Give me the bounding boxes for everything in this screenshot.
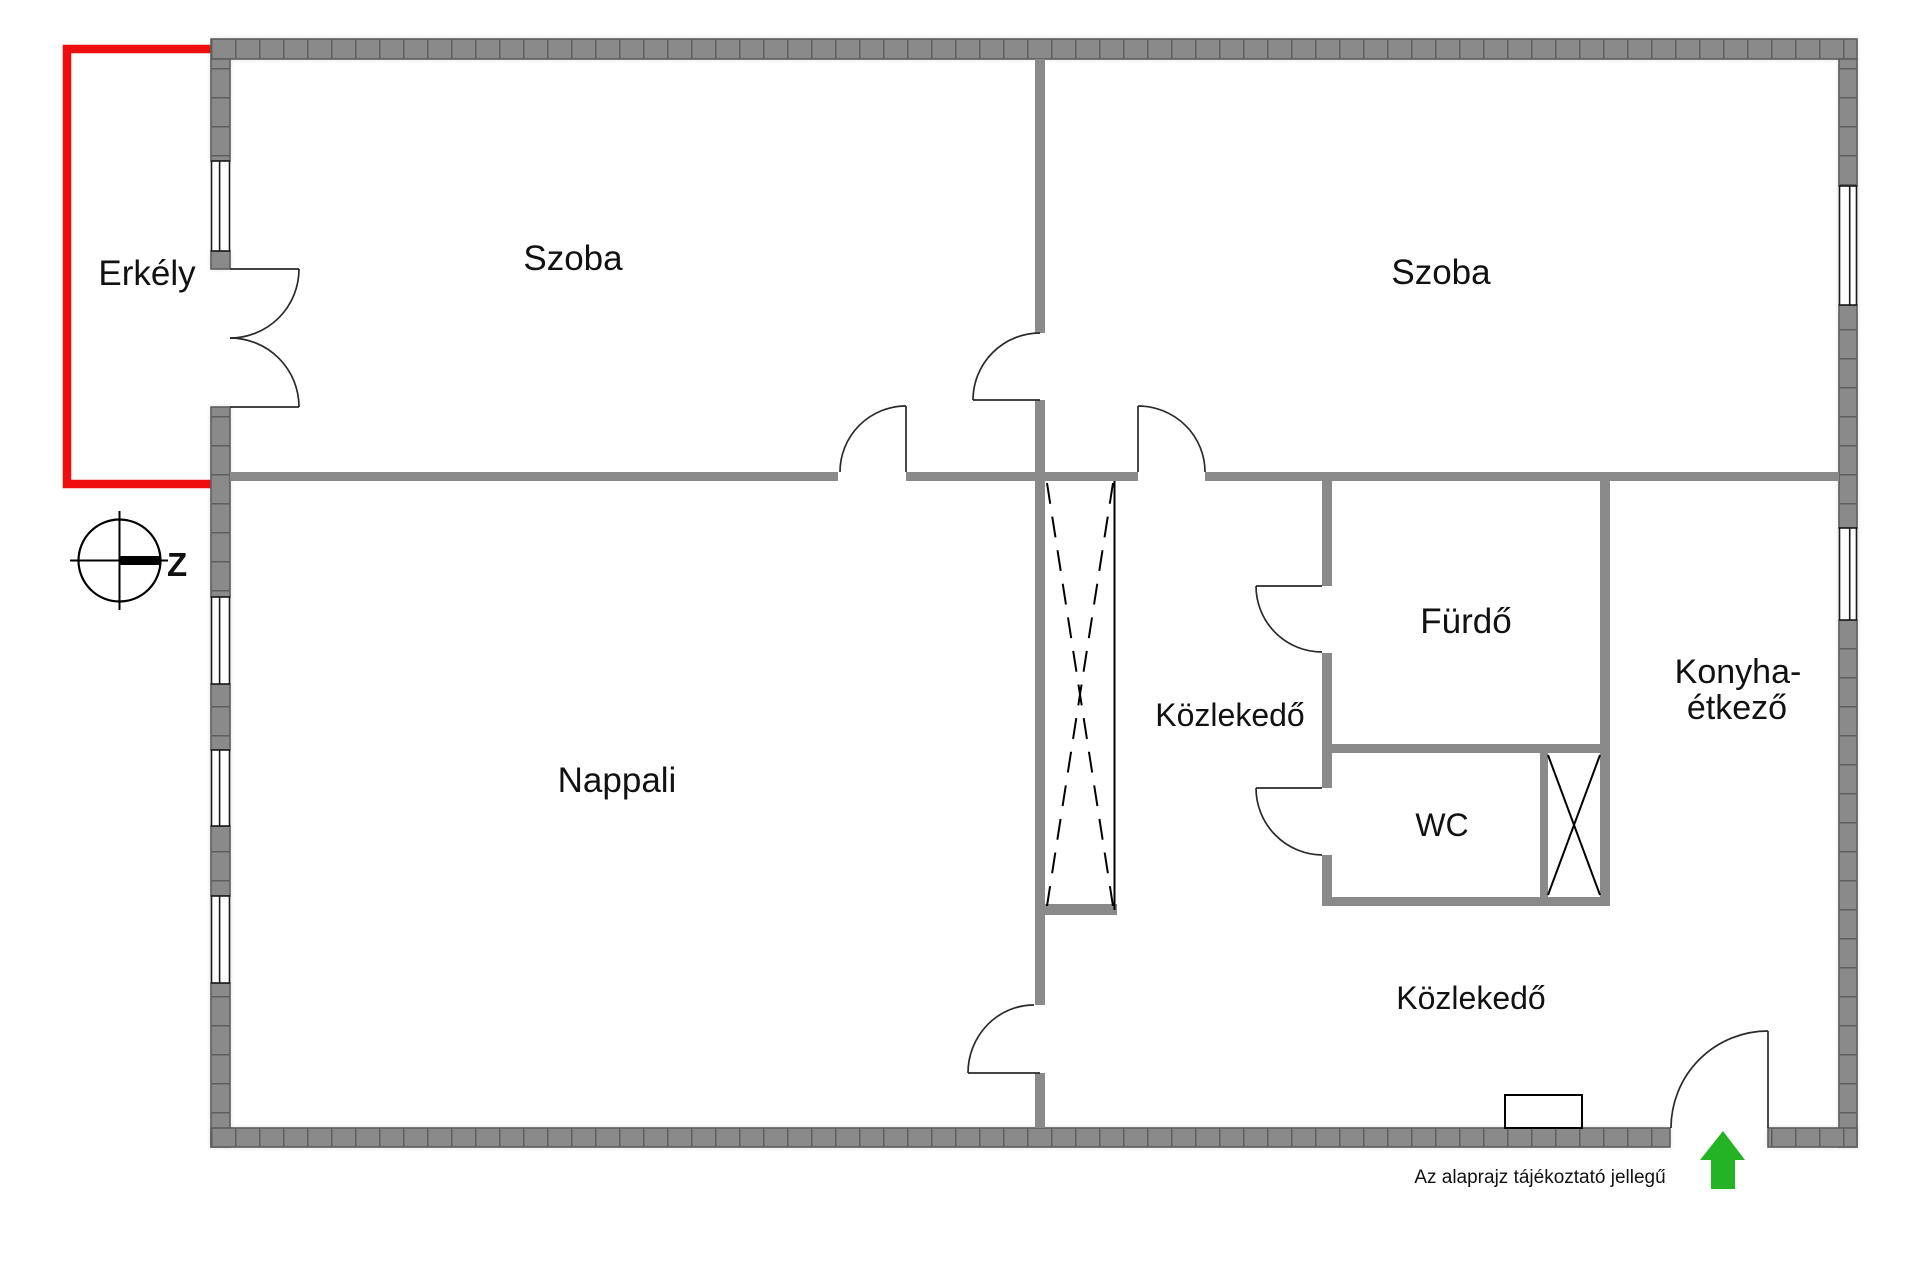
- svg-text:Szoba: Szoba: [1391, 253, 1491, 292]
- svg-text:Z: Z: [167, 546, 187, 583]
- svg-text:étkező: étkező: [1687, 689, 1787, 727]
- svg-text:Fürdő: Fürdő: [1420, 602, 1511, 641]
- svg-text:Erkély: Erkély: [98, 254, 196, 293]
- svg-text:Az alaprajz tájékoztató jelleg: Az alaprajz tájékoztató jellegű: [1414, 1167, 1665, 1188]
- svg-text:Közlekedő: Közlekedő: [1396, 980, 1545, 1016]
- svg-text:Konyha-: Konyha-: [1675, 653, 1802, 691]
- svg-text:WC: WC: [1415, 807, 1468, 843]
- svg-text:Nappali: Nappali: [558, 761, 677, 800]
- svg-text:Közlekedő: Közlekedő: [1155, 697, 1304, 733]
- svg-text:Szoba: Szoba: [523, 239, 623, 278]
